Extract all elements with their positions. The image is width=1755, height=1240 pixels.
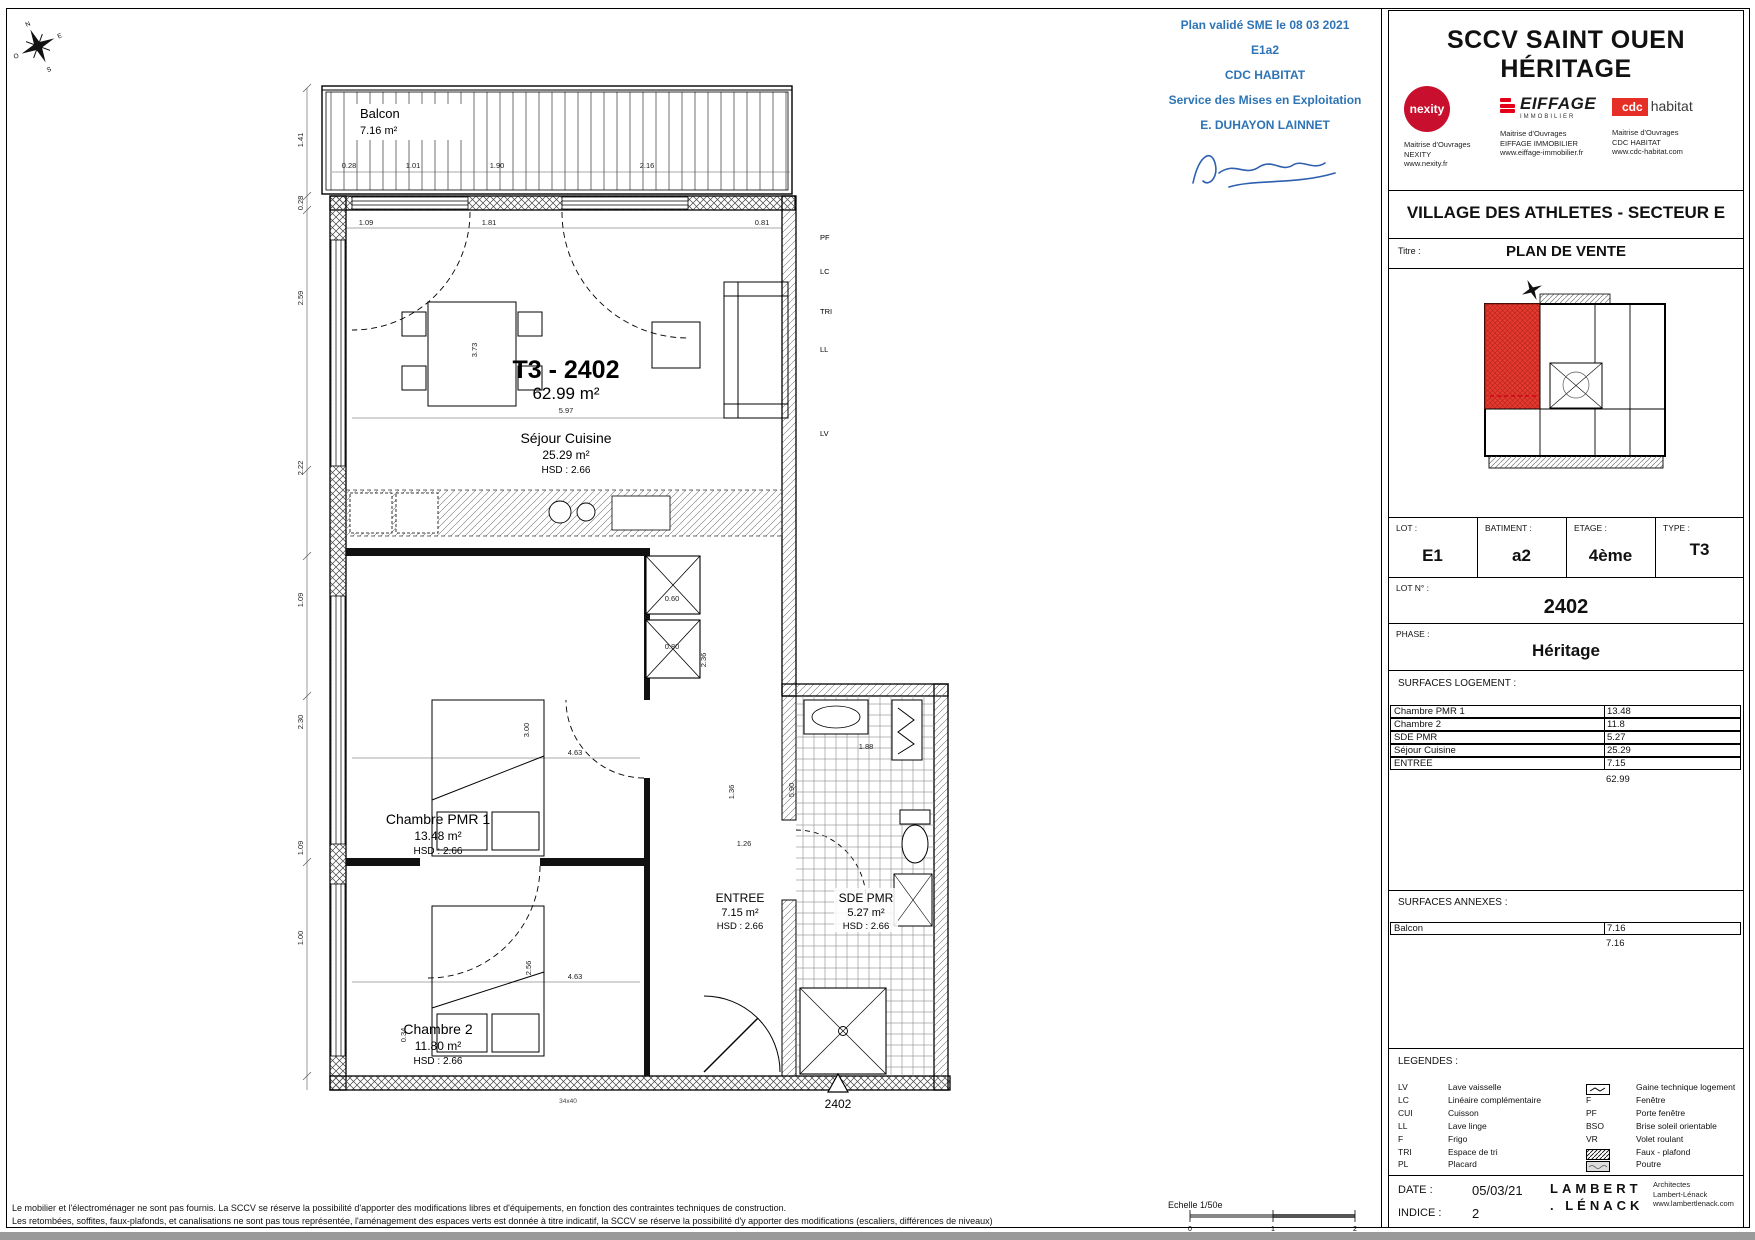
svg-text:1.88: 1.88: [859, 742, 874, 751]
svg-text:2402: 2402: [825, 1097, 852, 1111]
date-value: 05/03/21: [1472, 1183, 1523, 1198]
side-code-labels: PF LC TRI LL LV: [820, 233, 832, 438]
svg-text:5.97: 5.97: [559, 406, 574, 415]
stamp-line-5: E. DUHAYON LAINNET: [1115, 118, 1415, 132]
eiffage-logo: EIFFAGE IMMOBILIER: [1500, 94, 1600, 120]
stamp-line-1: Plan validé SME le 08 03 2021: [1115, 18, 1415, 32]
window-left-chambre-pmr: [331, 596, 345, 844]
type-label: TYPE :: [1663, 523, 1690, 533]
kitchen-counter: [346, 490, 782, 536]
washbasin: [804, 700, 868, 734]
validation-stamp: Plan validé SME le 08 03 2021 E1a2 CDC H…: [1115, 18, 1415, 204]
window-top-1: [352, 197, 468, 209]
svg-text:2.30: 2.30: [296, 715, 305, 730]
svg-text:1.41: 1.41: [296, 133, 305, 148]
svg-text:HSD : 2.66: HSD : 2.66: [414, 846, 463, 857]
disclaimer: Le mobilier et l'électroménager ne sont …: [12, 1202, 1162, 1228]
svg-text:11.80 m²: 11.80 m²: [415, 1039, 461, 1053]
svg-text:1.01: 1.01: [406, 161, 421, 170]
svg-text:5.90: 5.90: [787, 783, 796, 798]
highlighted-unit: [1485, 304, 1540, 409]
surfaces-annexes-title: SURFACES ANNEXES :: [1398, 897, 1507, 908]
titre-value: PLAN DE VENTE: [1390, 243, 1742, 260]
svg-text:5.27 m²: 5.27 m²: [847, 907, 885, 919]
chambre2-name: Chambre 2: [403, 1021, 472, 1037]
svg-text:1.00: 1.00: [296, 931, 305, 946]
svg-text:TRI: TRI: [820, 307, 832, 316]
shower: [800, 988, 886, 1074]
tv-cabinet: [652, 322, 700, 368]
svg-text:HSD : 2.66: HSD : 2.66: [542, 465, 591, 476]
svg-text:E: E: [57, 32, 64, 40]
svg-text:0.28: 0.28: [296, 196, 305, 211]
svg-text:2.22: 2.22: [296, 461, 305, 476]
phase-value: Héritage: [1388, 641, 1744, 661]
svg-text:1.81: 1.81: [482, 218, 497, 227]
partner-eiffage: EIFFAGE IMMOBILIER Maitrise d'Ouvrages E…: [1500, 94, 1600, 158]
svg-text:O: O: [13, 52, 21, 60]
svg-text:N: N: [24, 20, 31, 28]
svg-text:0.81: 0.81: [755, 218, 770, 227]
lot-label: LOT :: [1396, 523, 1417, 533]
key-plan: [1390, 268, 1742, 517]
chambre-pmr-name: Chambre PMR 1: [386, 811, 490, 827]
svg-text:3.73: 3.73: [470, 343, 479, 358]
surfaces-logement-total: 62.99: [1606, 774, 1630, 785]
nexity-logo: nexity: [1404, 86, 1450, 132]
table-row: Séjour Cuisine25.29: [1390, 744, 1741, 757]
table-row: SDE PMR5.27: [1390, 731, 1741, 744]
svg-text:1.09: 1.09: [296, 841, 305, 856]
svg-text:0.34: 0.34: [399, 1028, 408, 1043]
etage-label: ETAGE :: [1574, 523, 1607, 533]
etage-value: 4ème: [1566, 546, 1655, 566]
indice-label: INDICE :: [1398, 1207, 1441, 1219]
surfaces-annexes-total: 7.16: [1606, 938, 1625, 949]
table-row: Balcon7.16: [1390, 922, 1741, 935]
cdc-habitat-logo: cdchabitat: [1612, 98, 1712, 116]
date-label: DATE :: [1398, 1184, 1433, 1196]
panel-divider: [1381, 8, 1382, 1228]
partner-nexity: nexity Maitrise d'Ouvrages NEXITY www.ne…: [1404, 86, 1504, 169]
page-edge: [0, 1232, 1755, 1240]
technical-shafts: [646, 556, 700, 678]
trappe-box: [894, 874, 932, 926]
company-title: SCCV SAINT OUEN HÉRITAGE: [1390, 26, 1742, 84]
plan-sheet: N E S O Balcon 7.16 m²: [0, 0, 1755, 1240]
svg-text:2.56: 2.56: [524, 961, 533, 976]
svg-text:HSD : 2.66: HSD : 2.66: [717, 921, 763, 932]
lot-n-label: LOT N° :: [1396, 583, 1429, 593]
phase-label: PHASE :: [1396, 629, 1430, 639]
signature: [1185, 143, 1345, 201]
table-row: ENTREE7.15: [1390, 757, 1741, 770]
svg-text:25.29 m²: 25.29 m²: [542, 448, 589, 462]
stamp-line-4: Service des Mises en Exploitation: [1115, 93, 1415, 107]
entree-name: ENTREE: [716, 891, 765, 905]
svg-text:1.26: 1.26: [737, 839, 752, 848]
scale-bar: 0 1 2: [1188, 1210, 1357, 1233]
svg-text:LL: LL: [820, 345, 828, 354]
lot-value: E1: [1388, 546, 1477, 566]
svg-text:LC: LC: [820, 267, 830, 276]
scale-label: Echelle 1/50e: [1168, 1200, 1223, 1210]
svg-text:2.36: 2.36: [699, 653, 708, 668]
title-block: [1388, 10, 1744, 1228]
svg-text:HSD : 2.66: HSD : 2.66: [414, 1056, 463, 1067]
svg-text:13.48 m²: 13.48 m²: [414, 829, 461, 843]
svg-text:1.09: 1.09: [296, 593, 305, 608]
batiment-label: BATIMENT :: [1485, 523, 1532, 533]
batiment-value: a2: [1477, 546, 1566, 566]
stamp-line-3: CDC HABITAT: [1115, 68, 1415, 82]
svg-text:LV: LV: [820, 429, 829, 438]
column-note: 34x40: [559, 1098, 577, 1105]
svg-text:2.16: 2.16: [640, 161, 655, 170]
indice-value: 2: [1472, 1206, 1479, 1221]
svg-text:4.63: 4.63: [568, 748, 583, 757]
svg-text:HSD : 2.66: HSD : 2.66: [843, 921, 889, 932]
svg-text:3.00: 3.00: [522, 723, 531, 738]
balcon-area: 7.16 m²: [360, 125, 398, 137]
lot-n-value: 2402: [1388, 596, 1744, 619]
window-top-2: [562, 197, 688, 209]
svg-text:0.28: 0.28: [342, 161, 357, 170]
svg-text:7.15 m²: 7.15 m²: [721, 907, 759, 919]
surfaces-logement-title: SURFACES LOGEMENT :: [1398, 678, 1516, 689]
unit-area-label: 62.99 m²: [532, 384, 599, 403]
unit-code-label: T3 - 2402: [512, 356, 619, 384]
sejour-name: Séjour Cuisine: [520, 430, 611, 446]
stamp-line-2: E1a2: [1115, 43, 1415, 57]
svg-text:4.63: 4.63: [568, 972, 583, 981]
project-title: VILLAGE DES ATHLETES - SECTEUR E: [1390, 203, 1742, 223]
table-row: Chambre PMR 113.48: [1390, 705, 1741, 718]
svg-text:1.09: 1.09: [359, 218, 374, 227]
architect-info: Architectes Lambert-Lénack www.lambertle…: [1653, 1180, 1734, 1209]
lambert-lenack-logo: LAMBERT . LÉNACK: [1550, 1180, 1643, 1214]
svg-text:1.90: 1.90: [490, 161, 505, 170]
window-left-chambre2: [331, 884, 345, 1056]
wc: [900, 810, 930, 863]
dimension-lines: [303, 84, 790, 1090]
gtl-box: [892, 700, 922, 760]
svg-text:0.80: 0.80: [665, 642, 680, 651]
svg-text:2.59: 2.59: [296, 291, 305, 306]
balcony: Balcon 7.16 m²: [322, 86, 792, 194]
svg-text:PF: PF: [820, 233, 830, 242]
legendes-title: LEGENDES :: [1398, 1056, 1458, 1067]
window-left-sejour: [331, 240, 345, 466]
partner-cdc-habitat: cdchabitat Maitrise d'Ouvrages CDC HABIT…: [1612, 98, 1712, 157]
svg-text:0.60: 0.60: [665, 594, 680, 603]
sde-name: SDE PMR: [839, 891, 894, 905]
svg-text:S: S: [46, 66, 53, 74]
type-value: T3: [1655, 540, 1744, 560]
sde-pmr-room: [796, 696, 934, 1076]
table-row: Chambre 211.8: [1390, 718, 1741, 731]
sofa: [724, 282, 788, 418]
balcon-name: Balcon: [360, 106, 400, 121]
svg-text:1.36: 1.36: [727, 785, 736, 800]
north-compass-icon: N E S O: [3, 10, 75, 84]
